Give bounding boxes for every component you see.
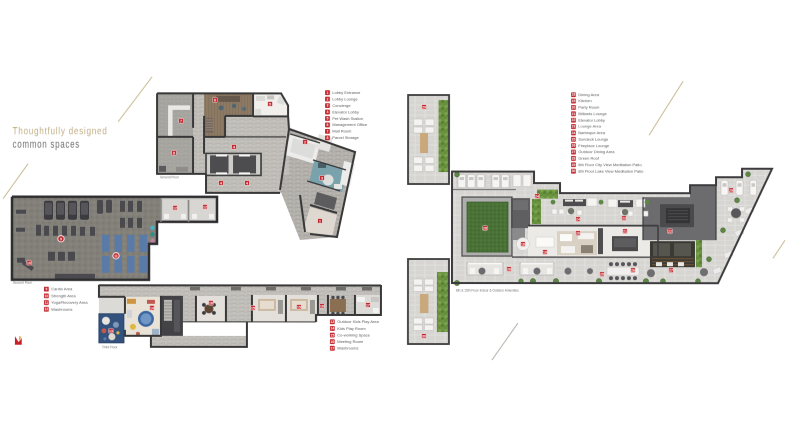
svg-text:Second Floor: Second Floor bbox=[13, 281, 33, 285]
svg-text:6: 6 bbox=[327, 123, 329, 127]
svg-text:19: 19 bbox=[572, 99, 576, 103]
svg-text:14: 14 bbox=[150, 306, 154, 310]
svg-text:16: 16 bbox=[209, 301, 213, 305]
svg-text:12: 12 bbox=[203, 205, 207, 209]
svg-text:Outdoor Kids Play Area: Outdoor Kids Play Area bbox=[337, 319, 379, 324]
svg-text:18: 18 bbox=[572, 93, 576, 97]
svg-text:11: 11 bbox=[114, 254, 118, 258]
svg-text:15: 15 bbox=[251, 306, 255, 310]
svg-text:24: 24 bbox=[576, 217, 580, 221]
svg-text:Management Office: Management Office bbox=[332, 122, 368, 127]
svg-text:8: 8 bbox=[327, 136, 329, 140]
svg-text:Strength Area: Strength Area bbox=[51, 293, 76, 298]
svg-text:Elevator Lobby: Elevator Lobby bbox=[332, 109, 359, 114]
svg-text:Barbeque Area: Barbeque Area bbox=[578, 130, 605, 135]
svg-text:6: 6 bbox=[214, 98, 216, 102]
svg-text:3: 3 bbox=[327, 104, 329, 108]
svg-text:Sundeck Lounge: Sundeck Lounge bbox=[578, 137, 609, 142]
svg-text:3: 3 bbox=[321, 176, 323, 180]
svg-text:7: 7 bbox=[180, 119, 182, 123]
svg-text:23: 23 bbox=[622, 216, 626, 220]
svg-text:24: 24 bbox=[572, 131, 576, 135]
svg-text:Pet Wash Station: Pet Wash Station bbox=[332, 116, 363, 121]
svg-text:9: 9 bbox=[60, 237, 62, 241]
svg-text:Party Room: Party Room bbox=[578, 105, 600, 110]
svg-text:23: 23 bbox=[572, 125, 576, 129]
svg-text:Ground Floor: Ground Floor bbox=[160, 175, 180, 179]
svg-text:7: 7 bbox=[327, 130, 329, 134]
svg-text:2: 2 bbox=[304, 140, 306, 144]
svg-text:Meeting Room: Meeting Room bbox=[337, 339, 364, 344]
svg-text:8: 8 bbox=[173, 151, 175, 155]
svg-text:1: 1 bbox=[319, 219, 321, 223]
svg-text:Washrooms: Washrooms bbox=[51, 307, 72, 312]
svg-text:28: 28 bbox=[572, 157, 576, 161]
svg-text:Thoughtfully designed: Thoughtfully designed bbox=[13, 125, 108, 137]
svg-text:Cardio Area: Cardio Area bbox=[51, 286, 73, 291]
svg-text:Concierge: Concierge bbox=[332, 103, 351, 108]
svg-text:Kids Play Room: Kids Play Room bbox=[337, 326, 366, 331]
svg-text:21: 21 bbox=[623, 229, 627, 233]
svg-text:24: 24 bbox=[535, 194, 539, 198]
svg-text:26: 26 bbox=[572, 144, 576, 148]
svg-text:Dining Area: Dining Area bbox=[578, 92, 599, 97]
svg-text:17: 17 bbox=[366, 303, 370, 307]
svg-text:Fireplace Lounge: Fireplace Lounge bbox=[578, 143, 610, 148]
svg-text:8th Floor Lake View Meditation: 8th Floor Lake View Meditation Patio bbox=[578, 168, 644, 173]
svg-text:2: 2 bbox=[327, 97, 329, 101]
svg-text:30: 30 bbox=[572, 169, 576, 173]
svg-text:22: 22 bbox=[668, 229, 672, 233]
svg-text:17: 17 bbox=[330, 346, 334, 350]
svg-text:4: 4 bbox=[220, 181, 222, 185]
svg-text:4: 4 bbox=[327, 110, 329, 114]
svg-text:16: 16 bbox=[330, 340, 334, 344]
svg-text:13: 13 bbox=[109, 329, 113, 333]
svg-text:5: 5 bbox=[327, 117, 329, 121]
svg-text:15: 15 bbox=[297, 305, 301, 309]
svg-text:29: 29 bbox=[572, 163, 576, 167]
svg-text:4: 4 bbox=[233, 145, 235, 149]
svg-text:20: 20 bbox=[576, 231, 580, 235]
svg-text:10: 10 bbox=[44, 294, 48, 298]
svg-text:8th Floor City View Meditation: 8th Floor City View Meditation Patio bbox=[578, 162, 642, 167]
svg-text:20: 20 bbox=[572, 106, 576, 110]
svg-text:22: 22 bbox=[572, 118, 576, 122]
svg-text:Elevator Lobby: Elevator Lobby bbox=[578, 118, 605, 123]
svg-text:30: 30 bbox=[422, 334, 426, 338]
svg-text:9: 9 bbox=[45, 287, 47, 291]
svg-text:Mail Room: Mail Room bbox=[332, 129, 352, 134]
svg-text:10: 10 bbox=[27, 261, 31, 265]
svg-text:Lobby Entrance: Lobby Entrance bbox=[332, 90, 361, 95]
svg-text:Yoga/Recovery Area: Yoga/Recovery Area bbox=[51, 300, 88, 305]
svg-text:19: 19 bbox=[543, 250, 547, 254]
svg-text:11: 11 bbox=[45, 301, 49, 305]
svg-text:Kitchen: Kitchen bbox=[578, 98, 591, 103]
svg-text:1: 1 bbox=[327, 91, 329, 95]
svg-text:27: 27 bbox=[669, 268, 673, 272]
svg-text:29: 29 bbox=[729, 189, 733, 193]
svg-text:common spaces: common spaces bbox=[13, 139, 81, 151]
svg-text:Lounge Area: Lounge Area bbox=[578, 124, 601, 129]
svg-text:15: 15 bbox=[330, 333, 334, 337]
svg-text:27: 27 bbox=[572, 150, 576, 154]
svg-text:4: 4 bbox=[246, 181, 248, 185]
svg-text:26: 26 bbox=[631, 268, 635, 272]
svg-text:12: 12 bbox=[44, 307, 48, 311]
svg-text:Outdoor Dining Area: Outdoor Dining Area bbox=[578, 149, 615, 154]
svg-text:18: 18 bbox=[521, 242, 525, 246]
svg-text:12: 12 bbox=[173, 206, 177, 210]
svg-text:8th & 15th Floor Indoor & Outd: 8th & 15th Floor Indoor & Outdoor Amenit… bbox=[456, 289, 519, 293]
svg-text:26: 26 bbox=[507, 267, 511, 271]
svg-text:21: 21 bbox=[572, 112, 576, 116]
svg-text:29: 29 bbox=[422, 105, 426, 109]
svg-text:25: 25 bbox=[572, 137, 576, 141]
svg-text:28: 28 bbox=[483, 226, 487, 230]
svg-text:14: 14 bbox=[330, 327, 334, 331]
svg-text:Third Floor: Third Floor bbox=[102, 345, 118, 349]
svg-text:Lobby Lounge: Lobby Lounge bbox=[332, 96, 358, 101]
svg-text:16: 16 bbox=[320, 304, 324, 308]
svg-text:Washrooms: Washrooms bbox=[337, 346, 358, 351]
svg-text:Billiards Lounge: Billiards Lounge bbox=[578, 111, 607, 116]
svg-text:Parcel Storage: Parcel Storage bbox=[332, 135, 359, 140]
svg-text:5: 5 bbox=[269, 102, 271, 106]
svg-text:Co-working Space: Co-working Space bbox=[337, 332, 370, 337]
svg-text:13: 13 bbox=[330, 320, 334, 324]
svg-text:25: 25 bbox=[600, 272, 604, 276]
svg-text:Green Roof: Green Roof bbox=[578, 156, 600, 161]
